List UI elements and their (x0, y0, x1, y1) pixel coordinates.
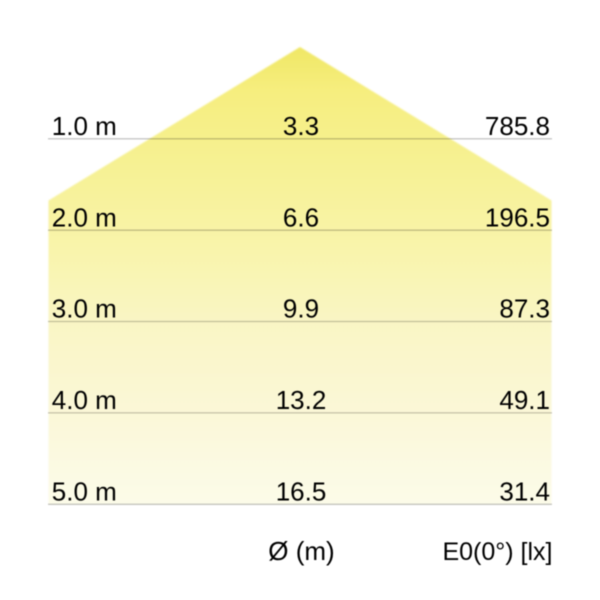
svg-text:3.0 m: 3.0 m (52, 294, 117, 324)
svg-text:6.6: 6.6 (283, 202, 319, 232)
svg-text:785.8: 785.8 (485, 111, 550, 141)
svg-text:2.0 m: 2.0 m (52, 202, 117, 232)
svg-text:9.9: 9.9 (283, 294, 319, 324)
svg-text:87.3: 87.3 (499, 294, 550, 324)
svg-text:1.0 m: 1.0 m (52, 111, 117, 141)
svg-text:31.4: 31.4 (499, 477, 550, 507)
svg-text:E0(0°) [lx]: E0(0°) [lx] (442, 538, 552, 566)
svg-text:4.0 m: 4.0 m (52, 385, 117, 415)
svg-text:Ø (m): Ø (m) (268, 536, 334, 566)
svg-text:49.1: 49.1 (499, 385, 550, 415)
svg-text:5.0 m: 5.0 m (52, 477, 117, 507)
svg-text:3.3: 3.3 (283, 111, 319, 141)
svg-text:16.5: 16.5 (276, 477, 327, 507)
svg-text:13.2: 13.2 (276, 385, 327, 415)
svg-text:196.5: 196.5 (485, 202, 550, 232)
